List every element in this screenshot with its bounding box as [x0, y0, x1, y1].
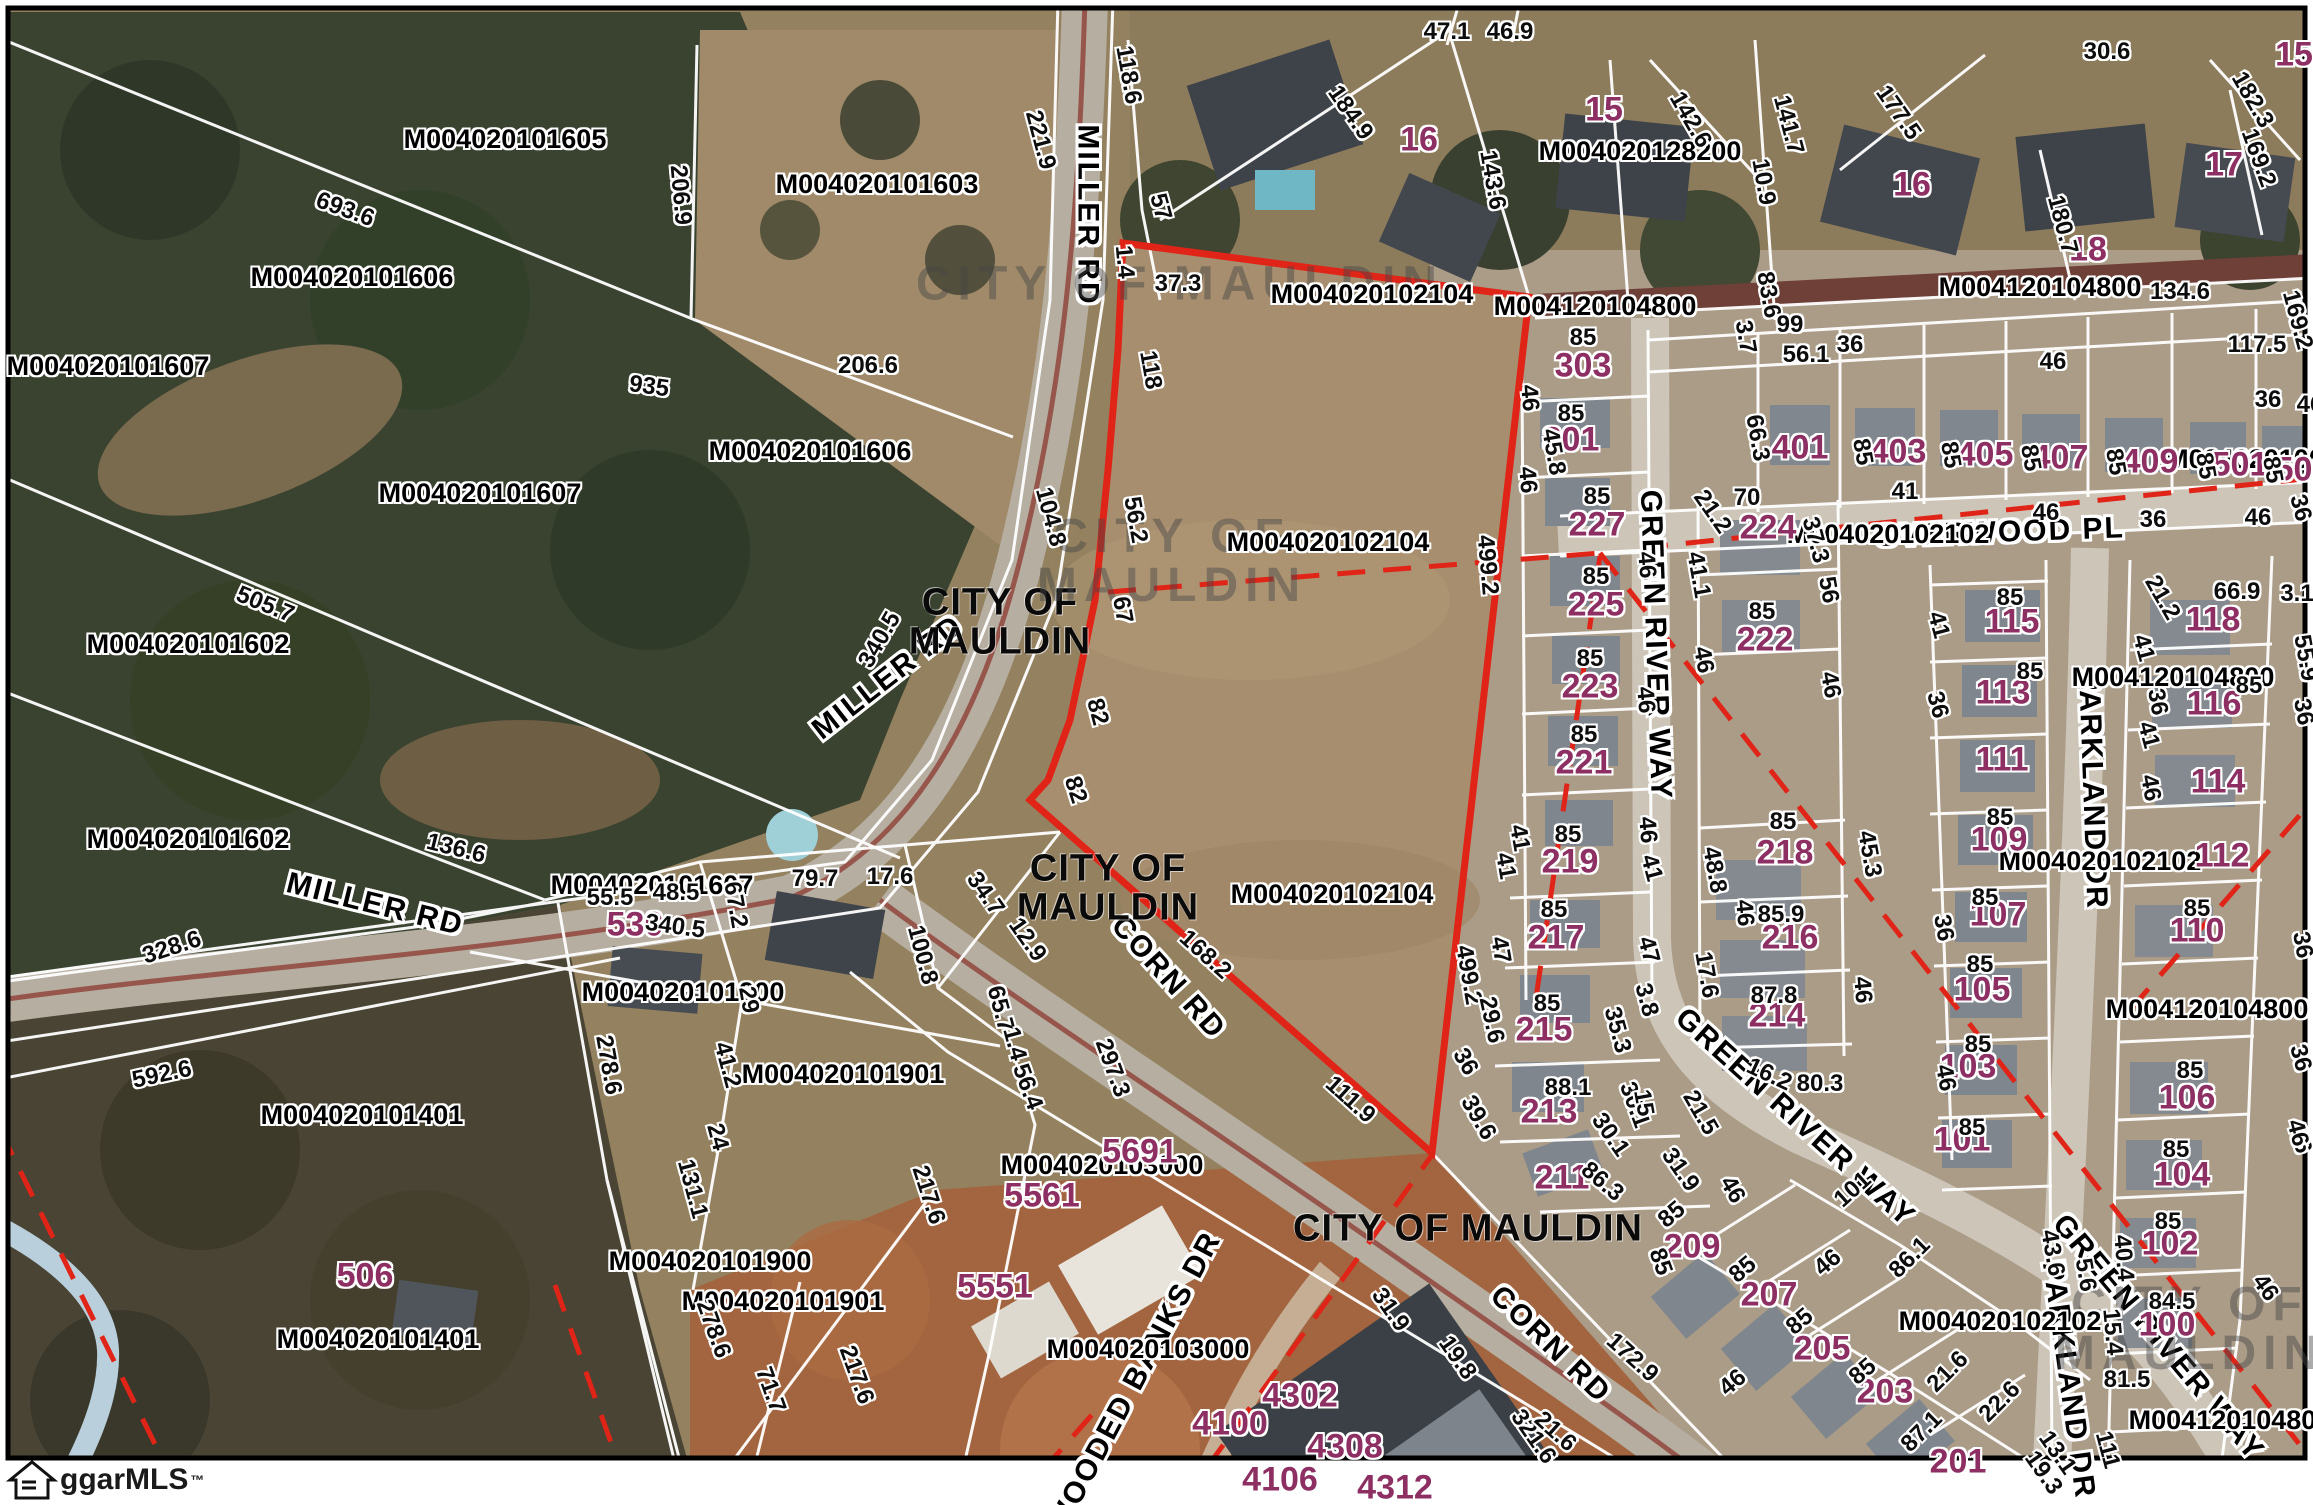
lot-number-label: 112: [2195, 839, 2250, 874]
dimension-label: 36: [2285, 492, 2313, 524]
dimension-label: 41: [1505, 823, 1534, 854]
dimension-label: 21.5: [1678, 1087, 1723, 1140]
dimension-label: 85: [2236, 674, 2263, 698]
parcel-id-label: M004020102102: [1899, 1308, 2102, 1336]
street-name-label: CORN RD: [1484, 1281, 1616, 1410]
dimension-label: 41.2: [709, 1039, 745, 1090]
lot-number-label: 114: [2191, 765, 2246, 800]
dimension-label: 31.9: [1657, 1144, 1704, 1196]
dimension-label: 499.2: [1472, 534, 1502, 596]
dimension-label: 21.2: [1689, 486, 1736, 538]
dimension-label: 85: [2177, 1059, 2204, 1083]
parcel-id-label: M004020102102: [1999, 848, 2202, 876]
dimension-label: 17.6: [1690, 950, 1722, 1000]
dimension-label: 30.6: [2084, 40, 2131, 64]
street-name-label: MILLER RD: [283, 868, 466, 942]
dimension-label: 217.6: [907, 1163, 949, 1228]
dimension-label: 57: [1145, 191, 1176, 223]
lot-number-label: 15: [2275, 38, 2313, 73]
dimension-label: 5.6: [2070, 1256, 2100, 1293]
dimension-label: 111.9: [1320, 1072, 1379, 1129]
dimension-label: 46: [1634, 816, 1661, 845]
lot-number-label: 215: [1516, 1013, 1573, 1048]
dimension-label: 131.1: [672, 1157, 711, 1221]
dimension-label: 46: [1931, 1063, 1960, 1094]
dimension-label: 36: [2289, 697, 2313, 728]
dimension-label: 37.3: [1155, 272, 1202, 296]
city-limits-label: CITY OF MAULDIN: [1017, 849, 1199, 927]
dimension-label: 36: [2143, 687, 2172, 718]
dimension-label: 46: [2245, 506, 2272, 530]
gis-parcel-map[interactable]: MILLER RDMILLER RDMILLER RDCORN RDCORN R…: [0, 0, 2313, 1505]
lot-number-label: 104: [2154, 1158, 2211, 1193]
dimension-label: 206.6: [838, 354, 898, 378]
mls-house-icon: [6, 1458, 58, 1502]
dimension-label: 136.6: [424, 830, 488, 868]
dimension-label: 297.3: [1090, 1036, 1134, 1101]
dimension-label: 935: [627, 372, 670, 402]
dimension-label: 85: [1534, 992, 1561, 1016]
parcel-id-label: M004020101900: [609, 1248, 812, 1276]
dimension-label: 85: [2155, 1210, 2182, 1234]
dimension-label: 56: [1814, 575, 1843, 606]
dimension-label: 46: [2033, 501, 2060, 525]
parcel-id-label: M004120104800: [1494, 293, 1697, 321]
lot-number-label: 111: [1976, 743, 2029, 778]
dimension-label: 85: [1936, 440, 1965, 471]
dimension-label: 41: [1636, 852, 1667, 884]
dimension-label: 66.3: [1741, 413, 1773, 463]
dimension-label: 85: [1997, 586, 2024, 610]
lot-number-label: 17: [2205, 148, 2243, 183]
street-name-label: WOODED BANKS DR: [1043, 1227, 1227, 1505]
dimension-label: 40.4: [2109, 1234, 2137, 1283]
lot-number-label: 5561: [1004, 1179, 1080, 1214]
dimension-label: 180.7: [2042, 193, 2081, 257]
dimension-label: 182.3: [2226, 68, 2277, 132]
parcel-id-label: M004020101605: [404, 126, 607, 154]
dimension-label: 86.1: [1885, 1233, 1935, 1283]
dimension-label: 15: [1629, 1088, 1658, 1119]
dimension-label: 79.7: [792, 867, 839, 891]
dimension-label: 693.6: [313, 188, 378, 232]
dimension-label: 172.9: [1601, 1329, 1662, 1387]
dimension-label: 31.9: [1367, 1284, 1414, 1336]
dimension-label: 46: [1514, 466, 1541, 495]
dimension-label: 143.6: [1475, 148, 1510, 211]
dimension-label: 85: [1848, 437, 1877, 468]
lot-number-label: 217: [1528, 921, 1585, 956]
dimension-label: 85: [1972, 886, 1999, 910]
dimension-label: 22.6: [1975, 1377, 2025, 1427]
dimension-label: 46.9: [1487, 20, 1534, 44]
dimension-label: 141.7: [1768, 93, 1807, 157]
lot-number-label: 201: [1930, 1445, 1987, 1480]
parcel-id-label: M004020102104: [1271, 281, 1474, 309]
dimension-label: 99: [1777, 313, 1804, 337]
dimension-label: 85: [1749, 600, 1776, 624]
dimension-label: 87.8: [1751, 984, 1798, 1008]
dimension-label: 221.9: [1020, 108, 1059, 172]
dimension-label: 85.9: [1758, 903, 1805, 927]
lot-number-label: 118: [2186, 603, 2241, 638]
lot-number-label: 401: [1772, 431, 1829, 466]
dimension-label: 36: [2255, 388, 2282, 412]
dimension-label: 82: [1082, 696, 1113, 728]
dimension-label: 41: [1491, 851, 1520, 882]
dimension-label: 46: [1849, 976, 1876, 1005]
lot-number-label: 4106: [1242, 1463, 1318, 1498]
dimension-label: 184.9: [1323, 81, 1377, 144]
dimension-label: 41: [2128, 632, 2159, 664]
dimension-label: 19.8: [1434, 1332, 1481, 1384]
dimension-label: 206.9: [665, 164, 695, 226]
dimension-label: 85: [1577, 647, 1604, 671]
dimension-label: 134.6: [2150, 280, 2210, 304]
dimension-label: 81.5: [2104, 1368, 2151, 1392]
dimension-label: 10.9: [1747, 157, 1779, 207]
map-labels-layer: MILLER RDMILLER RDMILLER RDCORN RDCORN R…: [0, 0, 2313, 1505]
lot-number-label: 222: [1737, 623, 1794, 658]
dimension-label: 85: [1967, 953, 1994, 977]
dimension-label: 46: [1731, 899, 1758, 928]
dimension-label: 85: [2017, 660, 2044, 684]
lot-number-label: 15: [1585, 93, 1623, 128]
dimension-label: 36: [1448, 1044, 1483, 1079]
mls-watermark-tm: ™: [190, 1472, 204, 1488]
parcel-id-label: M004020101606: [709, 438, 912, 466]
dimension-label: 29.6: [1474, 995, 1508, 1046]
dimension-label: 46: [1516, 384, 1543, 413]
dimension-label: 85: [1558, 402, 1585, 426]
dimension-label: 85: [2016, 443, 2045, 474]
lot-number-label: 4308: [1307, 1430, 1383, 1465]
dimension-label: 35.3: [1599, 1004, 1635, 1055]
lot-number-label: 16: [1400, 123, 1438, 158]
lot-number-label: 224: [1740, 511, 1797, 546]
dimension-label: 15.4: [2098, 1308, 2126, 1357]
dimension-label: 67.2: [719, 880, 751, 930]
lot-number-label: 303: [1555, 349, 1612, 384]
dimension-label: 3.8: [1630, 981, 1662, 1020]
parcel-id-label: M004120104800: [2106, 996, 2309, 1024]
dimension-label: 41: [1923, 609, 1954, 641]
dimension-label: 3.1: [2280, 582, 2313, 606]
dimension-label: 39.6: [1456, 1092, 1501, 1145]
dimension-label: 45.8: [1537, 427, 1569, 477]
parcel-id-label: M004020101602: [87, 631, 290, 659]
dimension-label: 29: [734, 985, 763, 1016]
parcel-id-label: M004020101606: [251, 264, 454, 292]
lot-number-label: 105: [1954, 973, 2011, 1008]
dimension-label: 41: [2133, 719, 2164, 751]
lot-number-label: 106: [2159, 1081, 2216, 1116]
dimension-label: 592.6: [130, 1057, 194, 1093]
lot-number-label: 227: [1569, 508, 1626, 543]
dimension-label: 118: [1135, 349, 1166, 391]
dimension-label: 48.8: [1698, 845, 1730, 895]
lot-number-label: 219: [1542, 845, 1599, 880]
dimension-label: 85: [2191, 451, 2220, 482]
dimension-label: 24: [702, 1121, 733, 1153]
parcel-id-label: M004020101401: [277, 1326, 480, 1354]
lot-number-label: 409: [2122, 445, 2179, 480]
dimension-label: 117.5: [2228, 333, 2287, 357]
dimension-label: 36: [2285, 1042, 2313, 1074]
dimension-label: 56.1: [1783, 343, 1830, 367]
lot-number-label: 403: [1870, 435, 1927, 470]
dimension-label: 47: [1633, 934, 1664, 966]
city-limits-label: CITY OF MAULDIN: [1293, 1210, 1643, 1249]
lot-number-label: 4312: [1357, 1471, 1433, 1505]
dimension-label: 36: [2288, 930, 2313, 961]
mls-watermark: ggarMLS™: [6, 1458, 204, 1502]
dimension-label: 46: [1715, 1172, 1750, 1207]
dimension-label: 177.5: [1871, 81, 1925, 144]
dimension-label: 70: [1734, 486, 1761, 510]
dimension-label: 67: [1108, 595, 1137, 626]
dimension-label: 55.5: [587, 886, 634, 910]
dimension-label: 46: [1816, 670, 1845, 701]
dimension-label: 46: [2040, 350, 2067, 374]
lot-number-label: 116: [2187, 687, 2242, 722]
lot-number-label: 506: [337, 1259, 394, 1294]
dimension-label: 85: [1570, 326, 1597, 350]
lot-number-label: 207: [1741, 1278, 1798, 1313]
dimension-label: 1.4: [1110, 244, 1137, 279]
dimension-label: 46: [1689, 645, 1718, 676]
dimension-label: 85: [2163, 1138, 2190, 1162]
dimension-label: 85: [1770, 810, 1797, 834]
dimension-label: 34.7: [962, 868, 1009, 920]
dimension-label: 499.2: [1451, 943, 1486, 1006]
dimension-label: 46: [2282, 1117, 2313, 1149]
parcel-id-label: M004020101401: [261, 1102, 464, 1130]
lot-number-label: 16: [1893, 168, 1931, 203]
dimension-label: 46: [1810, 1245, 1846, 1281]
dimension-label: 3.7: [1730, 318, 1760, 355]
parcel-id-label: M004020101607: [7, 353, 210, 381]
dimension-label: 71.7: [751, 1364, 790, 1416]
dimension-label: 46: [2136, 773, 2165, 804]
street-name-label: GREEN RIVER WAY: [1634, 489, 1675, 801]
lot-number-label: 5551: [957, 1270, 1033, 1305]
dimension-label: 55.9: [2289, 633, 2313, 683]
dimension-label: 46: [1632, 686, 1659, 715]
dimension-label: 85: [2101, 447, 2130, 478]
parcel-id-label: M004020102104: [1227, 529, 1430, 557]
dimension-label: 505.7: [233, 582, 298, 627]
dimension-label: 17.6: [867, 865, 914, 889]
dimension-label: 85: [1584, 485, 1611, 509]
dimension-label: 84.5: [2149, 1290, 2196, 1314]
parcel-id-label: M004120104800: [1939, 274, 2142, 302]
dimension-label: 85: [1571, 723, 1598, 747]
mls-watermark-text: ggarMLS: [60, 1463, 188, 1497]
parcel-id-label: M004020101901: [742, 1061, 945, 1089]
dimension-label: 46: [1633, 551, 1660, 580]
parcel-id-label: M004020103000: [1047, 1336, 1250, 1364]
lot-number-label: 4302: [1262, 1379, 1338, 1414]
dimension-label: 41.1: [1682, 550, 1714, 600]
dimension-label: 85: [1541, 898, 1568, 922]
dimension-label: 47: [1486, 935, 1515, 966]
parcel-id-label: M004020102104: [1231, 881, 1434, 909]
dimension-label: 118.6: [1111, 44, 1145, 106]
dimension-label: 85: [2258, 455, 2287, 486]
lot-number-label: 223: [1562, 670, 1619, 705]
dimension-label: 21.2: [2140, 572, 2185, 625]
dimension-label: 85: [1583, 565, 1610, 589]
lot-number-label: 4100: [1192, 1407, 1268, 1442]
dimension-label: 85: [1987, 806, 2014, 830]
dimension-label: 80.3: [1797, 1072, 1844, 1096]
parcel-id-label: M004120104800: [2129, 1407, 2313, 1435]
parcel-id-label: M004020101602: [87, 826, 290, 854]
dimension-label: 85: [1959, 1116, 1986, 1140]
parcel-id-label: M004020101603: [776, 171, 979, 199]
dimension-label: 1.4: [998, 1025, 1030, 1064]
dimension-label: 36: [1922, 689, 1953, 721]
dimension-label: 66.9: [2214, 580, 2261, 604]
lot-number-label: 405: [1957, 438, 2014, 473]
dimension-label: 85: [2184, 897, 2211, 921]
dimension-label: 36: [2140, 508, 2167, 532]
dimension-label: 48.5: [653, 881, 700, 905]
dimension-label: 46: [2297, 393, 2313, 417]
dimension-label: 45.3: [1853, 829, 1885, 879]
dimension-label: 100.8: [902, 923, 941, 987]
lot-number-label: 221: [1556, 746, 1613, 781]
lot-number-label: 5691: [1102, 1135, 1178, 1170]
lot-number-label: 225: [1568, 588, 1625, 623]
dimension-label: 85: [1644, 1245, 1676, 1278]
dimension-label: 85: [1965, 1033, 1992, 1057]
dimension-label: 88.1: [1545, 1076, 1592, 1100]
dimension-label: 278.6: [591, 1033, 626, 1096]
dimension-label: 82: [1059, 774, 1091, 807]
dimension-label: 328.6: [140, 927, 205, 969]
dimension-label: 41: [1892, 480, 1919, 504]
parcel-id-label: M004020101607: [379, 480, 582, 508]
dimension-label: 36: [1929, 913, 1958, 944]
dimension-label: 217.6: [834, 1343, 878, 1408]
dimension-label: 21.6: [1923, 1347, 1973, 1397]
dimension-label: 46: [1715, 1365, 1751, 1401]
dimension-label: 47.1: [1424, 20, 1471, 44]
dimension-label: 56.4: [1008, 1061, 1047, 1113]
lot-number-label: 218: [1757, 836, 1814, 871]
dimension-label: 36: [1837, 333, 1864, 357]
dimension-label: 85: [1555, 823, 1582, 847]
